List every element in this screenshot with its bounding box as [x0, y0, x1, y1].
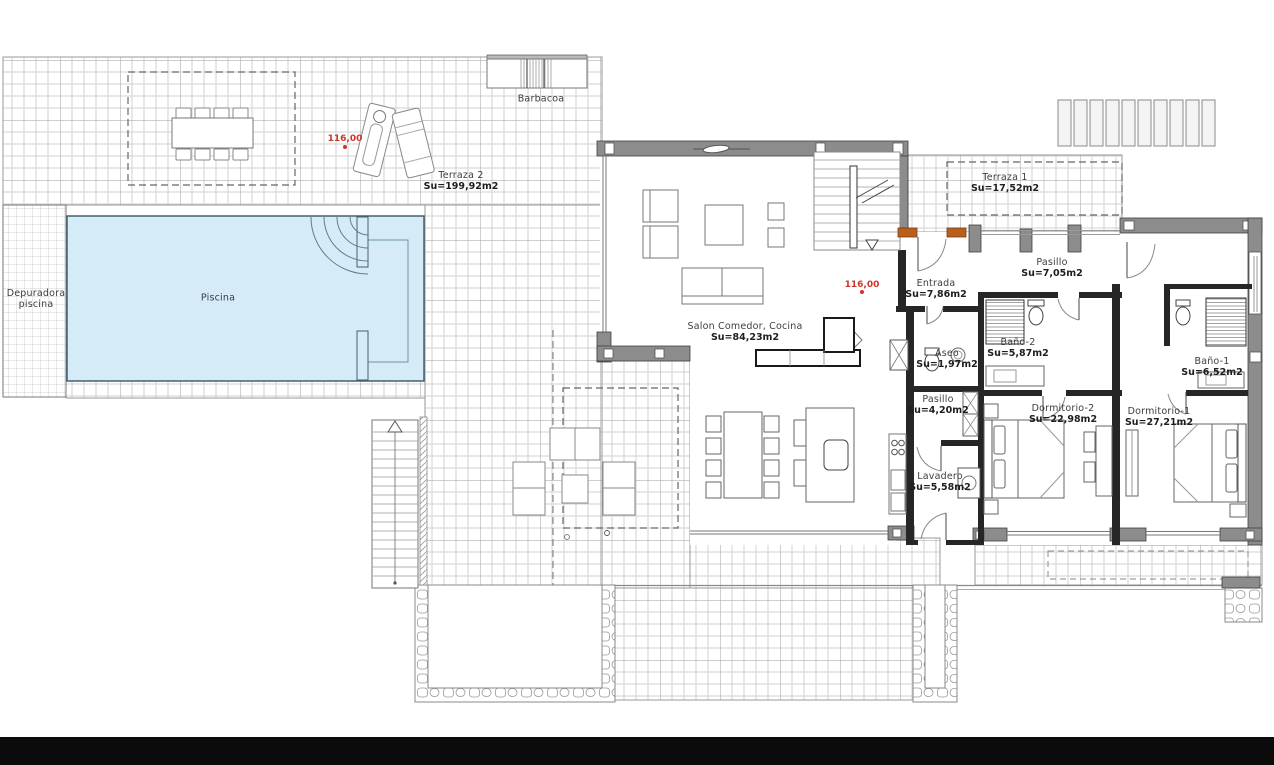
room-label-bano-1: Baño-1 Su=6,52m2 [1181, 356, 1243, 378]
room-name: Depuradora [7, 288, 66, 299]
room-name: Pasillo [1021, 257, 1083, 268]
room-name: Terraza 2 [424, 170, 499, 181]
room-name: Lavadero [909, 471, 971, 482]
room-name: Terraza 1 [971, 172, 1039, 183]
pool-step-wall [357, 217, 368, 267]
room-label-aseo: Aseo Su=1,97m2 [916, 348, 978, 370]
room-label-entrada: Entrada Su=7,86m2 [905, 278, 967, 300]
room-name: Dormitorio-1 [1125, 406, 1193, 417]
room-label-dormitorio-2: Dormitorio-2 Su=22,98m2 [1029, 403, 1097, 425]
room-area: Su=7,05m2 [1021, 268, 1083, 279]
room-area: Su=199,92m2 [424, 181, 499, 192]
room-label-pasillo-7: Pasillo Su=7,05m2 [1021, 257, 1083, 279]
room-label-lavadero: Lavadero Su=5,58m2 [909, 471, 971, 493]
level-value: 116,00 [328, 134, 363, 144]
room-area: Su=27,21m2 [1125, 417, 1193, 428]
level-value: 116,00 [845, 280, 880, 290]
floor-plan-drawing [0, 0, 1274, 765]
garden-area [415, 577, 1262, 702]
room-name: Salon Comedor, Cocina [687, 321, 802, 332]
room-name: Baño-2 [987, 337, 1049, 348]
room-name: Baño-1 [1181, 356, 1243, 367]
room-area: Su=1,97m2 [916, 359, 978, 370]
interior-stairs [814, 152, 900, 250]
room-area: Su=22,98m2 [1029, 414, 1097, 425]
swimming-pool [67, 216, 424, 381]
room-label-terraza-1: Terraza 1 Su=17,52m2 [971, 172, 1039, 194]
room-label-piscina: Piscina [201, 293, 235, 304]
room-area: Su=17,52m2 [971, 183, 1039, 194]
room-name: Aseo [916, 348, 978, 359]
level-marker-2: 116,00 [845, 280, 880, 290]
room-area: Su=7,86m2 [905, 289, 967, 300]
stair-railing [420, 417, 427, 585]
bottom-black-bar [0, 737, 1274, 765]
room-label-terraza-2: Terraza 2 Su=199,92m2 [424, 170, 499, 192]
level-marker-1: 116,00 [328, 134, 363, 144]
sink [824, 440, 848, 470]
room-name-line-2: piscina [7, 299, 66, 310]
room-name: Dormitorio-2 [1029, 403, 1097, 414]
room-label-salon: Salon Comedor, Cocina Su=84,23m2 [687, 321, 802, 343]
room-label-bano-2: Baño-2 Su=5,87m2 [987, 337, 1049, 359]
room-name: Barbacoa [518, 94, 565, 105]
room-label-depuradora: Depuradora piscina [7, 288, 66, 310]
room-label-barbacoa: Barbacoa [518, 94, 565, 105]
outdoor-stairs [372, 417, 427, 588]
stone-corner [1225, 588, 1262, 622]
lawn [428, 585, 602, 688]
room-name: Entrada [905, 278, 967, 289]
room-area: Su=84,23m2 [687, 332, 802, 343]
roof-louvers [1058, 100, 1215, 146]
room-area: Su=4,20m2 [907, 405, 969, 416]
room-name: Pasillo [907, 394, 969, 405]
barbecue [487, 55, 587, 88]
room-area: Su=5,87m2 [987, 348, 1049, 359]
fridge [891, 493, 905, 511]
pool-bench [357, 331, 368, 380]
floor-plan-page: Terraza 2 Su=199,92m2 Terraza 1 Su=17,52… [0, 0, 1274, 765]
room-area: Su=6,52m2 [1181, 367, 1243, 378]
room-name: Piscina [201, 293, 235, 304]
room-area: Su=5,58m2 [909, 482, 971, 493]
room-label-dormitorio-1: Dormitorio-1 Su=27,21m2 [1125, 406, 1193, 428]
room-label-pasillo-4: Pasillo Su=4,20m2 [907, 394, 969, 416]
oven [891, 470, 905, 490]
desk [1096, 426, 1112, 496]
